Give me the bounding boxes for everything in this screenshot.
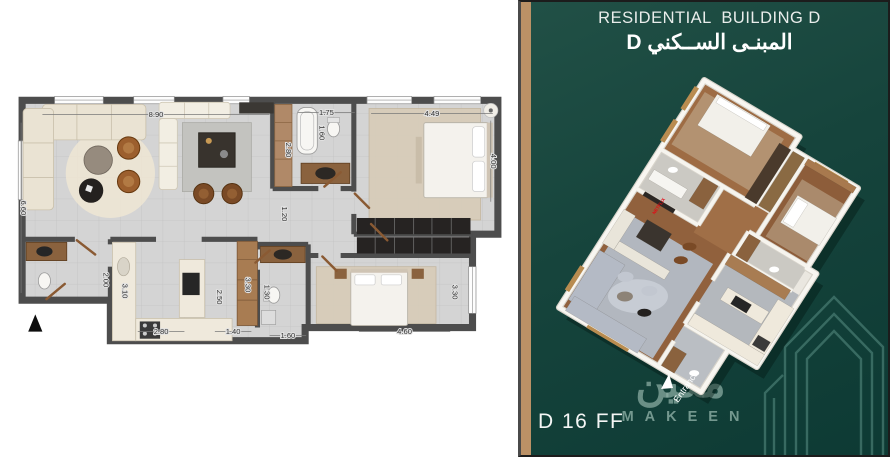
- dim-bath2-height: 1.30: [263, 285, 272, 300]
- dim-kitchen-height: 3.10: [121, 284, 130, 299]
- dim-bedroom1-height: 4.00: [489, 154, 498, 169]
- unit-number-label: D 16 FF: [538, 410, 624, 434]
- dim-bedroom2-width: 4.60: [397, 327, 412, 336]
- dim-bedroom1-width: 4.49: [425, 109, 440, 118]
- floor-plan-2d-panel: 8.90 1.75 4.49 2.80 1.40 1.60 4.60 6.60 …: [0, 0, 518, 457]
- bedroom-2-furniture: [316, 267, 436, 326]
- entrance-arrow-icon: [28, 314, 42, 331]
- dim-island-height: 2.50: [215, 290, 224, 305]
- floor-plan-3d: NETFLIX Entrance: [531, 60, 888, 425]
- dim-living-height: 6.60: [19, 200, 28, 215]
- living-room-furniture: [23, 104, 155, 218]
- dim-kitchen-width: 2.80: [154, 327, 169, 336]
- building-title-ar: المبنـى الســكني D: [531, 30, 888, 55]
- dim-hall-height: 1.20: [280, 207, 289, 222]
- dim-pantry-width: 1.40: [226, 327, 241, 336]
- dim-tub-length: 1.60: [317, 125, 326, 140]
- building-title-en: RESIDENTIAL BUILDING D: [531, 9, 888, 28]
- panel-titles: RESIDENTIAL BUILDING D المبنـى الســكني …: [531, 9, 888, 55]
- dim-kitchen-entry: 2.00: [101, 272, 110, 287]
- floor-plan-2d: 8.90 1.75 4.49 2.80 1.40 1.60 4.60 6.60 …: [14, 92, 506, 346]
- green-backdrop: RESIDENTIAL BUILDING D المبنـى الســكني …: [531, 2, 888, 455]
- render-3d-panel: RESIDENTIAL BUILDING D المبنـى الســكني …: [518, 0, 890, 457]
- dim-pantry-height: 3.30: [243, 278, 252, 293]
- dim-bath1-width: 1.75: [319, 108, 334, 117]
- dim-living-width: 8.90: [149, 110, 164, 119]
- dim-bath2-width: 1.60: [281, 331, 296, 340]
- bedroom-1-furniture: [369, 103, 498, 220]
- brochure-page: 8.90 1.75 4.49 2.80 1.40 1.60 4.60 6.60 …: [0, 0, 890, 457]
- dim-bedroom2-height: 3.30: [450, 285, 459, 300]
- dim-wardrobe-height: 2.80: [284, 143, 293, 158]
